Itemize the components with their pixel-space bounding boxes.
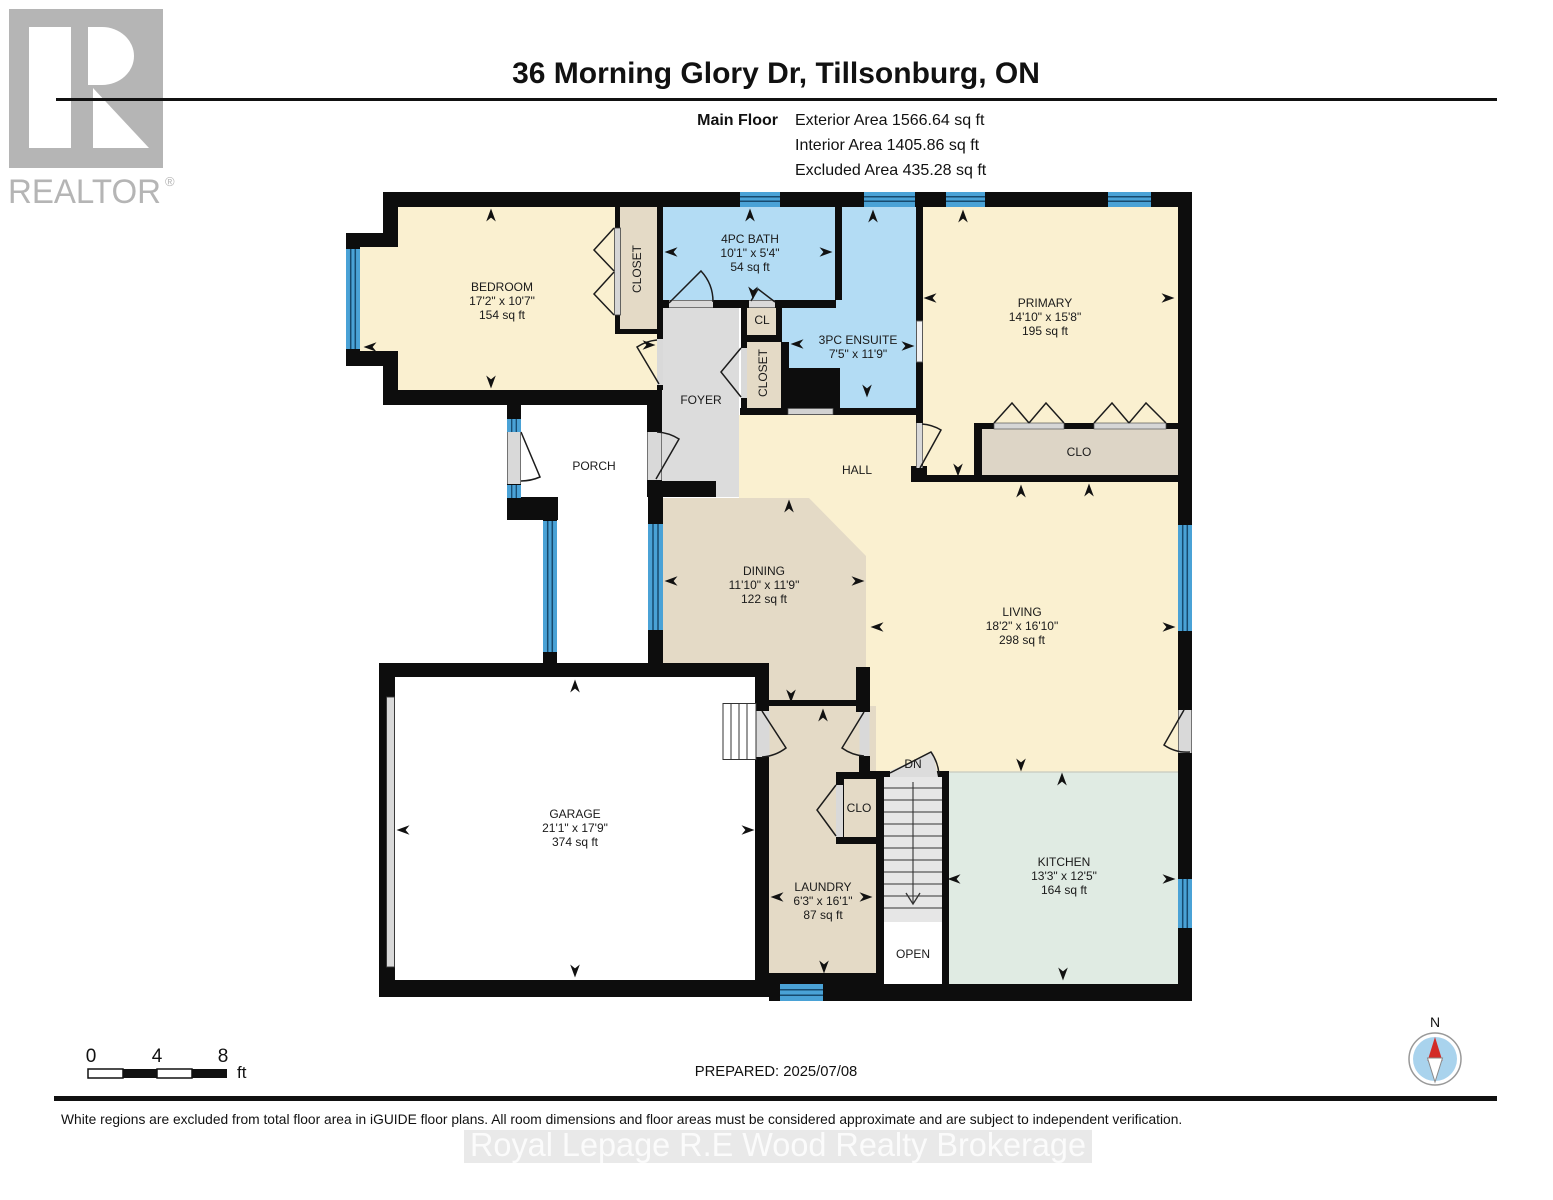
svg-text:54 sq ft: 54 sq ft [730, 260, 770, 274]
svg-text:154 sq ft: 154 sq ft [479, 308, 526, 322]
svg-text:BEDROOM: BEDROOM [471, 280, 533, 294]
svg-text:CLO: CLO [1067, 445, 1092, 459]
svg-text:CL: CL [754, 313, 770, 327]
svg-text:PRIMARY: PRIMARY [1018, 296, 1072, 310]
svg-text:Royal Lepage R.E Wood Realty: Royal Lepage R.E Wood Realty Brokerage [470, 1126, 1086, 1163]
svg-text:4PC BATH: 4PC BATH [721, 232, 779, 246]
svg-text:DINING: DINING [743, 564, 785, 578]
svg-text:122 sq ft: 122 sq ft [741, 592, 788, 606]
svg-text:Exterior Area 1566.64 sq ft: Exterior Area 1566.64 sq ft [795, 112, 985, 129]
svg-text:HALL: HALL [842, 463, 872, 477]
svg-text:REALTOR: REALTOR [8, 173, 161, 211]
svg-text:CLO: CLO [847, 801, 872, 815]
svg-text:11'10" x 11'9": 11'10" x 11'9" [729, 578, 800, 592]
svg-text:White regions are excluded fro: White regions are excluded from total fl… [61, 1112, 1182, 1127]
svg-text:87 sq ft: 87 sq ft [803, 908, 843, 922]
svg-text:CLOSET: CLOSET [756, 348, 770, 397]
svg-text:KITCHEN: KITCHEN [1038, 855, 1091, 869]
svg-text:ft: ft [237, 1063, 247, 1082]
svg-text:N: N [1430, 1014, 1440, 1030]
svg-text:PORCH: PORCH [572, 459, 615, 473]
svg-text:195 sq ft: 195 sq ft [1022, 324, 1069, 338]
svg-text:6'3" x 16'1": 6'3" x 16'1" [793, 894, 852, 908]
svg-text:LIVING: LIVING [1002, 605, 1041, 619]
svg-text:Excluded Area 435.28 sq ft: Excluded Area 435.28 sq ft [795, 162, 987, 179]
svg-text:Main Floor: Main Floor [697, 112, 778, 129]
svg-text:18'2" x 16'10": 18'2" x 16'10" [986, 619, 1059, 633]
svg-text:36 Morning Glory Dr, Tillsonbu: 36 Morning Glory Dr, Tillsonburg, ON [512, 57, 1040, 90]
svg-text:8: 8 [218, 1046, 229, 1067]
svg-text:DN: DN [904, 757, 921, 771]
svg-text:164 sq ft: 164 sq ft [1041, 883, 1088, 897]
svg-text:Interior Area 1405.86 sq ft: Interior Area 1405.86 sq ft [795, 137, 980, 154]
svg-text:FOYER: FOYER [680, 393, 722, 407]
svg-text:PREPARED: 2025/07/08: PREPARED: 2025/07/08 [695, 1064, 858, 1080]
svg-text:3PC ENSUITE: 3PC ENSUITE [819, 333, 898, 347]
svg-text:374 sq ft: 374 sq ft [552, 835, 599, 849]
svg-text:LAUNDRY: LAUNDRY [794, 880, 851, 894]
svg-text:OPEN: OPEN [896, 947, 930, 961]
svg-text:®: ® [165, 174, 175, 189]
svg-text:14'10" x 15'8": 14'10" x 15'8" [1009, 310, 1082, 324]
svg-text:0: 0 [86, 1046, 97, 1067]
svg-text:21'1" x 17'9": 21'1" x 17'9" [542, 821, 608, 835]
svg-text:GARAGE: GARAGE [549, 807, 600, 821]
svg-text:298 sq ft: 298 sq ft [999, 633, 1046, 647]
svg-text:7'5" x 11'9": 7'5" x 11'9" [829, 347, 887, 361]
svg-text:17'2" x 10'7": 17'2" x 10'7" [469, 294, 535, 308]
svg-text:4: 4 [152, 1046, 163, 1067]
svg-text:13'3" x 12'5": 13'3" x 12'5" [1031, 869, 1097, 883]
svg-text:10'1" x 5'4": 10'1" x 5'4" [720, 246, 779, 260]
svg-text:CLOSET: CLOSET [630, 244, 644, 293]
